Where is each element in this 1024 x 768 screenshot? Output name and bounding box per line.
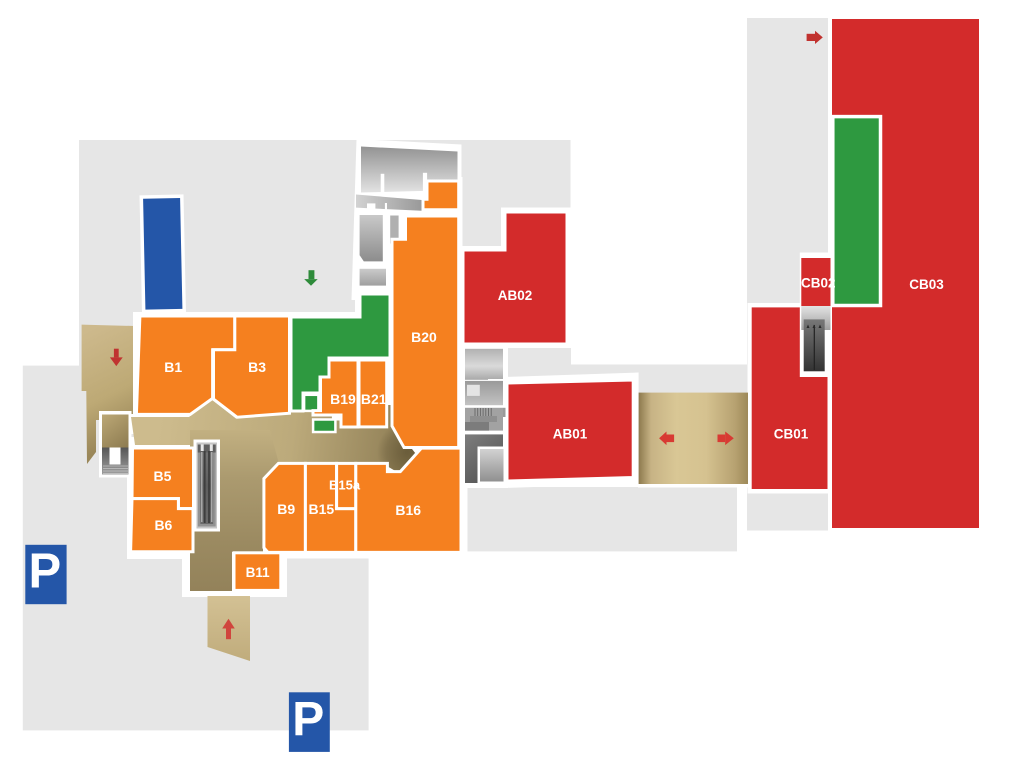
svg-text:CB01: CB01 (774, 427, 809, 442)
svg-text:B21: B21 (361, 391, 387, 407)
svg-text:B15a: B15a (329, 478, 361, 493)
svg-text:P: P (28, 545, 61, 599)
svg-text:B20: B20 (411, 329, 437, 345)
svg-text:B9: B9 (277, 501, 295, 517)
svg-text:P: P (292, 693, 324, 746)
svg-text:B3: B3 (248, 359, 266, 375)
svg-text:AB02: AB02 (498, 288, 533, 303)
svg-text:AB01: AB01 (553, 427, 588, 442)
svg-text:B19: B19 (330, 391, 356, 407)
svg-text:B6: B6 (154, 517, 172, 533)
svg-text:CB02: CB02 (801, 276, 836, 291)
svg-text:B11: B11 (246, 565, 271, 580)
svg-text:B16: B16 (395, 502, 421, 518)
svg-text:B5: B5 (154, 468, 172, 484)
svg-text:B15: B15 (308, 501, 334, 517)
svg-text:CB03: CB03 (909, 277, 944, 292)
svg-text:B1: B1 (164, 359, 182, 375)
